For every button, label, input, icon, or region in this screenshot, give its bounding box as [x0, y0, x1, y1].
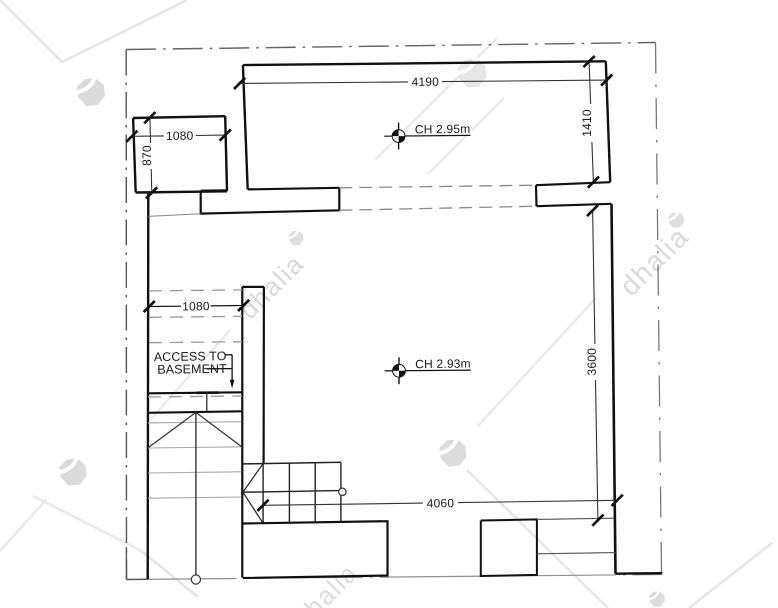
svg-text:CH 2.93m: CH 2.93m — [415, 357, 471, 372]
svg-text:CH 2.95m: CH 2.95m — [415, 122, 471, 137]
svg-text:1080: 1080 — [182, 299, 210, 313]
svg-text:4190: 4190 — [411, 75, 439, 89]
svg-text:3600: 3600 — [585, 348, 599, 376]
svg-text:4060: 4060 — [427, 496, 455, 510]
svg-text:1410: 1410 — [580, 109, 594, 137]
svg-text:870: 870 — [140, 145, 154, 166]
svg-text:1080: 1080 — [166, 129, 194, 143]
